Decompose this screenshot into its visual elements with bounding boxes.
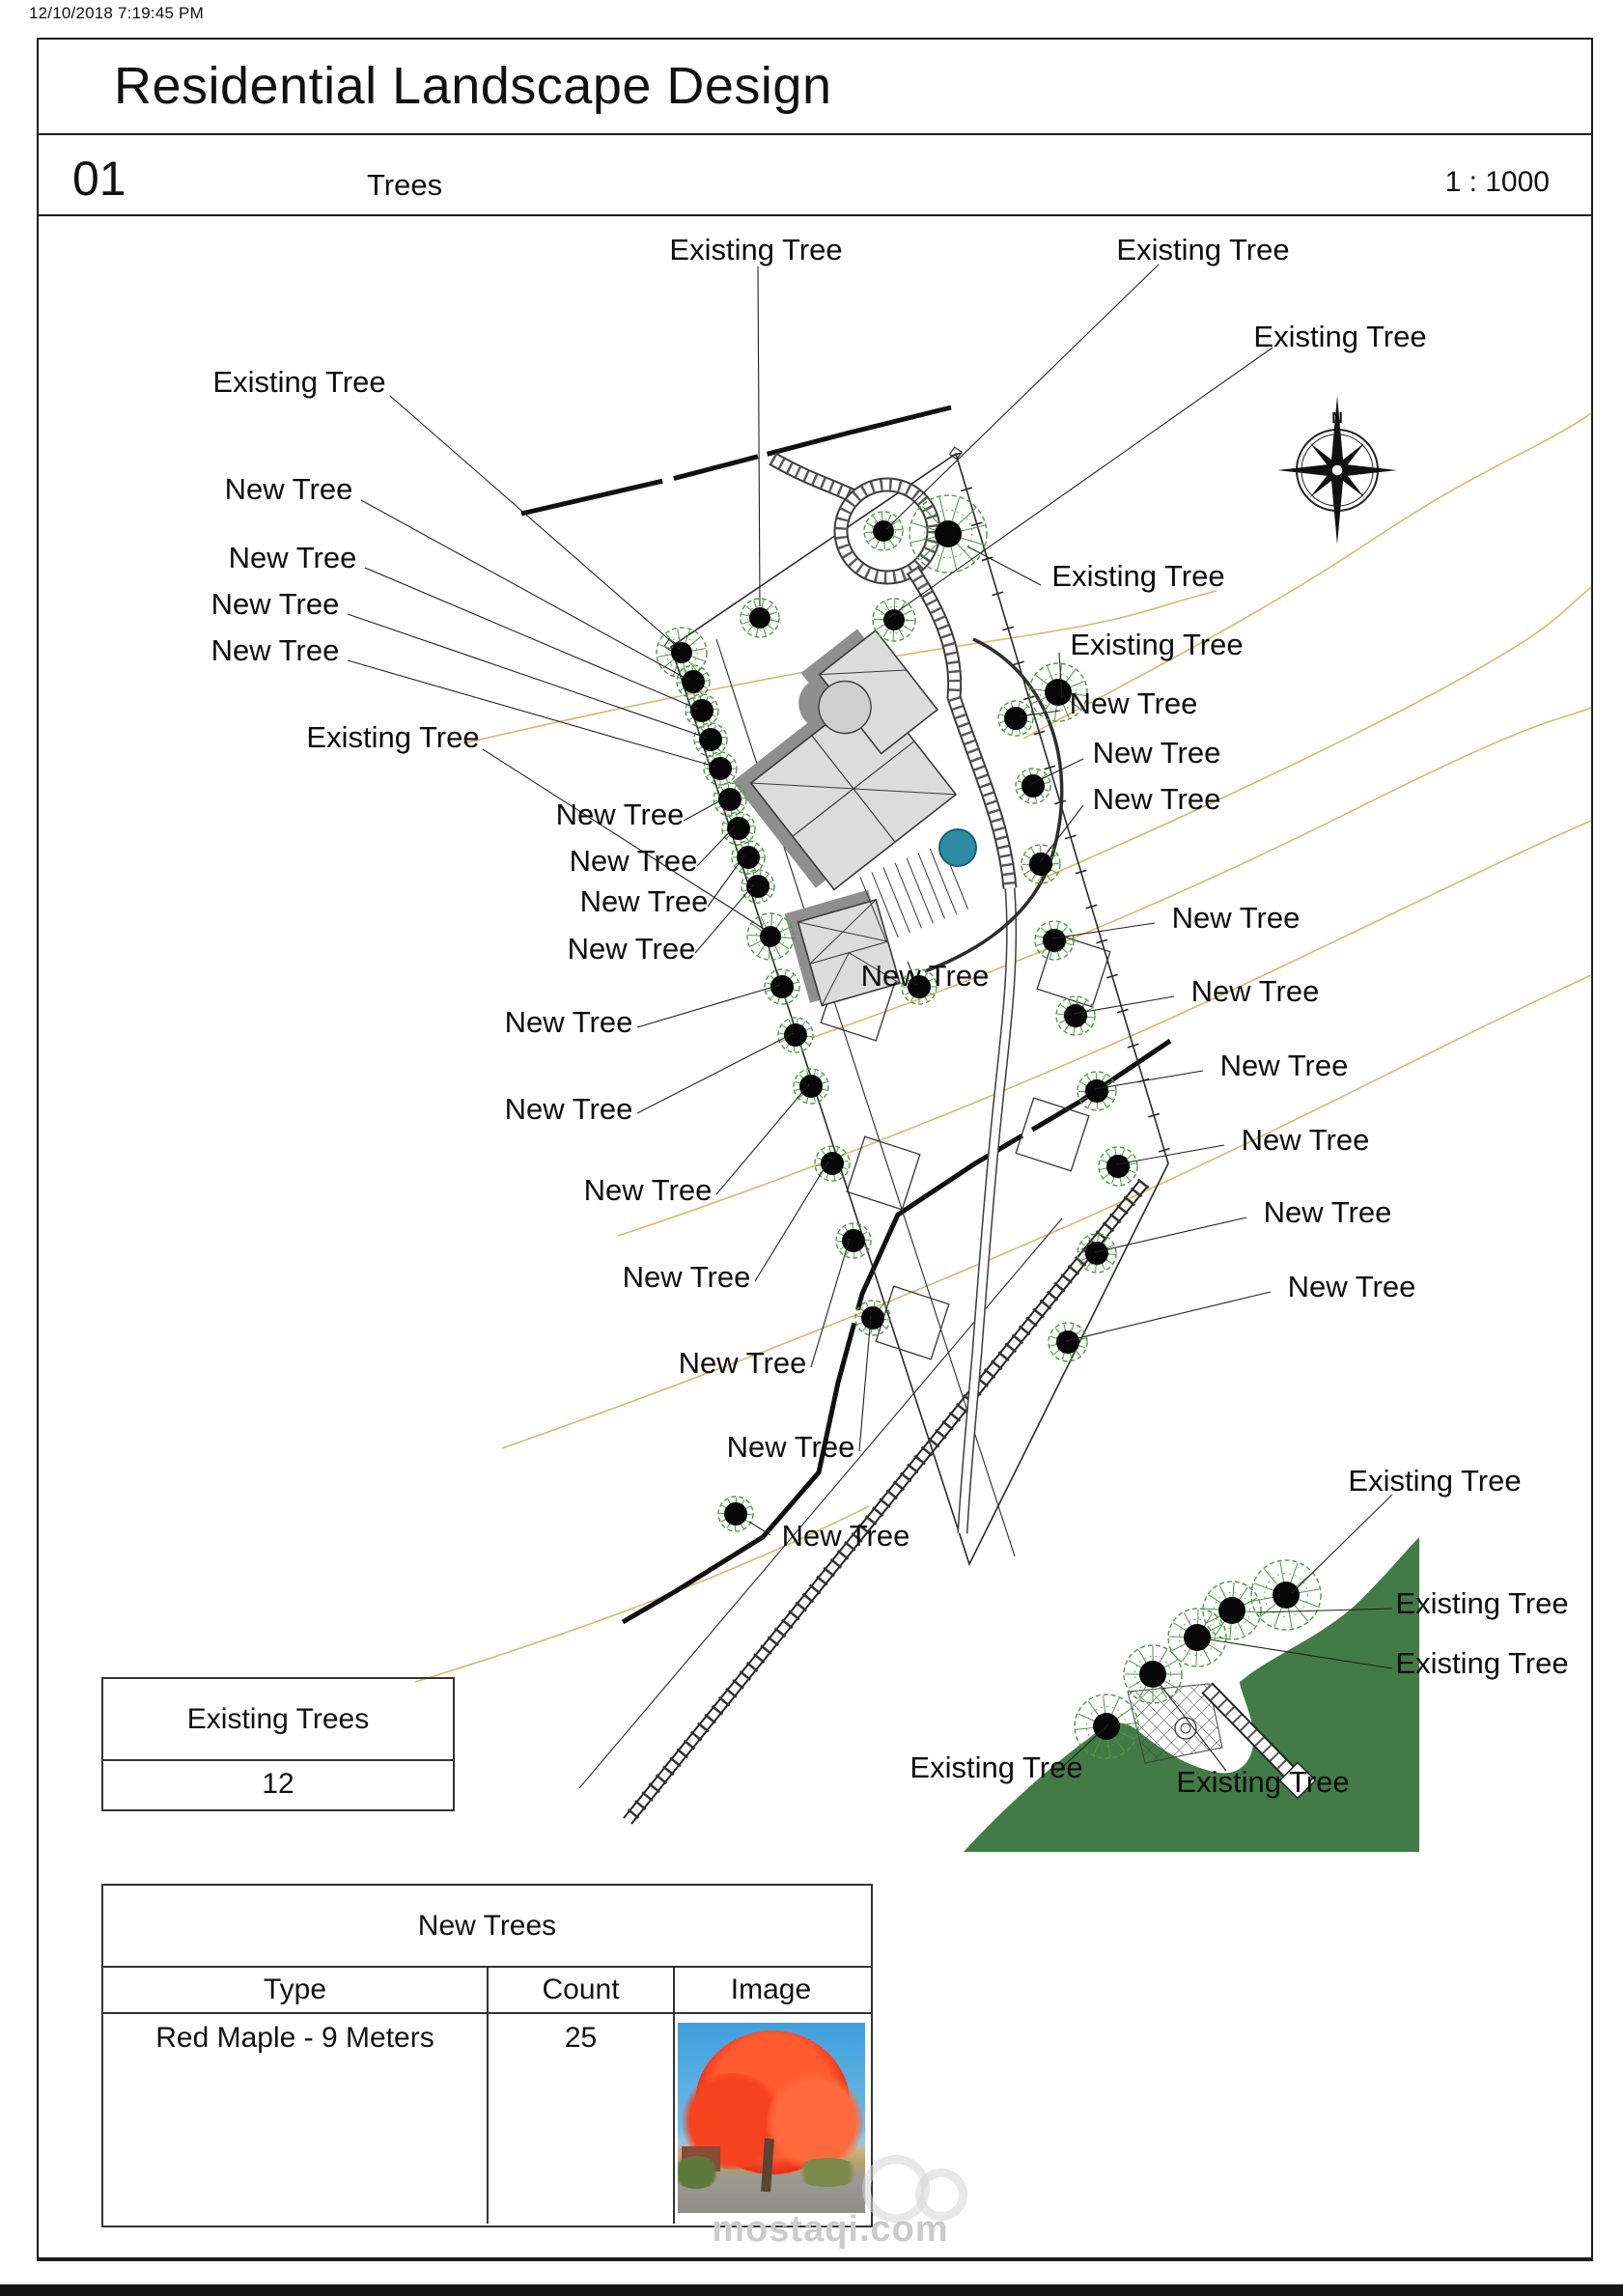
cell-tree-count: 25 xyxy=(489,2014,675,2224)
tree-label: New Tree xyxy=(1288,1270,1416,1303)
leader-line xyxy=(637,1033,794,1113)
leader-line xyxy=(755,1162,828,1281)
leader-line xyxy=(716,1084,809,1194)
new-tree-symbol xyxy=(765,969,799,1004)
leader-line xyxy=(365,568,697,709)
existing-trees-count: 12 xyxy=(103,1761,453,1807)
tree-label: New Tree xyxy=(679,1346,807,1380)
new-tree-symbol xyxy=(677,665,710,698)
tree-label: Existing Tree xyxy=(1253,320,1426,353)
north-label: N xyxy=(1331,410,1343,427)
new-tree-symbol xyxy=(794,1069,828,1104)
leader-line xyxy=(1066,1292,1271,1341)
tree-label: Existing Tree xyxy=(1051,559,1224,593)
red-maple-photo xyxy=(678,2023,865,2213)
tree-label: Existing Tree xyxy=(909,1750,1082,1784)
leader-line xyxy=(697,826,735,866)
tree-label: New Tree xyxy=(556,798,685,831)
new-tree-symbol xyxy=(1099,1147,1137,1186)
north-arrow-icon: N xyxy=(1277,396,1397,545)
new-tree-symbol xyxy=(742,870,774,903)
leader-line xyxy=(859,1316,871,1451)
tree-label: New Tree xyxy=(584,1173,713,1207)
tree-label: New Tree xyxy=(782,1519,910,1553)
leader-line xyxy=(1031,759,1083,784)
existing-tree-symbol xyxy=(864,512,903,550)
column-header-count: Count xyxy=(489,1968,675,2012)
leader-line xyxy=(361,500,688,680)
existing-tree-symbol xyxy=(1251,1560,1321,1630)
tree-label: New Tree xyxy=(568,932,696,966)
leader-line xyxy=(758,266,760,606)
new-tree-symbol xyxy=(836,1223,871,1258)
leader-line xyxy=(708,855,744,907)
tree-label: Existing Tree xyxy=(1116,233,1289,266)
tree-label: New Tree xyxy=(1070,686,1198,720)
existing-trees-table-header: Existing Trees xyxy=(103,1679,453,1761)
tree-label: New Tree xyxy=(505,1092,633,1126)
tree-label: New Tree xyxy=(211,587,340,621)
existing-tree-symbol xyxy=(873,599,915,641)
leader-line xyxy=(811,1239,850,1367)
tree-label: New Tree xyxy=(1172,901,1301,935)
new-tree-symbol xyxy=(998,701,1033,736)
cell-tree-type: Red Maple - 9 Meters xyxy=(103,2014,489,2224)
tree-label: New Tree xyxy=(623,1260,751,1294)
new-tree-symbol xyxy=(714,783,746,816)
tree-label: New Tree xyxy=(229,541,357,574)
tree-label: New Tree xyxy=(1264,1195,1392,1229)
tree-label: New Tree xyxy=(570,844,698,878)
pool xyxy=(939,829,976,866)
tree-label: Existing Tree xyxy=(212,365,385,399)
new-tree-symbol xyxy=(778,1018,813,1052)
leader-line xyxy=(1292,1495,1392,1593)
tree-label: Existing Tree xyxy=(1348,1464,1521,1498)
new-tree-symbol xyxy=(694,723,727,756)
tree-label: Existing Tree xyxy=(306,720,479,754)
sheet-bottom-bar xyxy=(0,2284,1623,2296)
tree-label: New Tree xyxy=(580,884,709,918)
tree-label: Existing Tree xyxy=(1395,1586,1568,1620)
column-header-type: Type xyxy=(103,1968,489,2012)
column-header-image: Image xyxy=(675,1968,867,2012)
new-tree-symbol xyxy=(686,694,718,727)
new-tree-symbol xyxy=(1049,1323,1087,1361)
tree-label: Existing Tree xyxy=(1176,1765,1349,1799)
tree-label: New Tree xyxy=(1220,1049,1349,1082)
drawing-sheet: 12/10/2018 7:19:45 PM Residential Landsc… xyxy=(0,0,1623,2296)
existing-trees-table: Existing Trees 12 xyxy=(101,1677,455,1811)
tree-label: New Tree xyxy=(727,1430,855,1464)
new-tree-symbol xyxy=(732,841,765,874)
watermark-text: mostaqi.com xyxy=(637,2209,1023,2251)
leader-line xyxy=(967,546,1041,585)
tree-label: New Tree xyxy=(1093,782,1221,816)
new-tree-symbol xyxy=(1077,1072,1116,1110)
tree-label: Existing Tree xyxy=(1070,628,1243,661)
tree-label: New Tree xyxy=(1242,1123,1370,1157)
tree-label: Existing Tree xyxy=(1395,1646,1568,1680)
road-edge-upper xyxy=(521,407,951,514)
tree-label: New Tree xyxy=(225,472,353,506)
tree-label: New Tree xyxy=(1191,974,1320,1008)
new-tree-symbol xyxy=(704,752,737,785)
tree-label: Existing Tree xyxy=(669,233,842,266)
tree-label: New Tree xyxy=(861,959,990,993)
leader-line xyxy=(637,985,780,1027)
leader-line xyxy=(684,798,726,821)
tree-label: New Tree xyxy=(1093,736,1221,770)
existing-tree-symbol xyxy=(1203,1582,1261,1639)
leader-line xyxy=(390,396,680,649)
tree-label: New Tree xyxy=(505,1005,633,1039)
tree-symbols-layer xyxy=(657,495,1321,1758)
new-tree-symbol xyxy=(1016,769,1050,803)
leader-line xyxy=(886,265,1159,529)
new-trees-table-title: New Trees xyxy=(103,1886,871,1968)
tree-label: New Tree xyxy=(211,633,340,667)
new-tree-symbol xyxy=(718,1497,753,1531)
new-tree-symbol xyxy=(1056,996,1095,1035)
new-tree-symbol xyxy=(722,812,755,845)
